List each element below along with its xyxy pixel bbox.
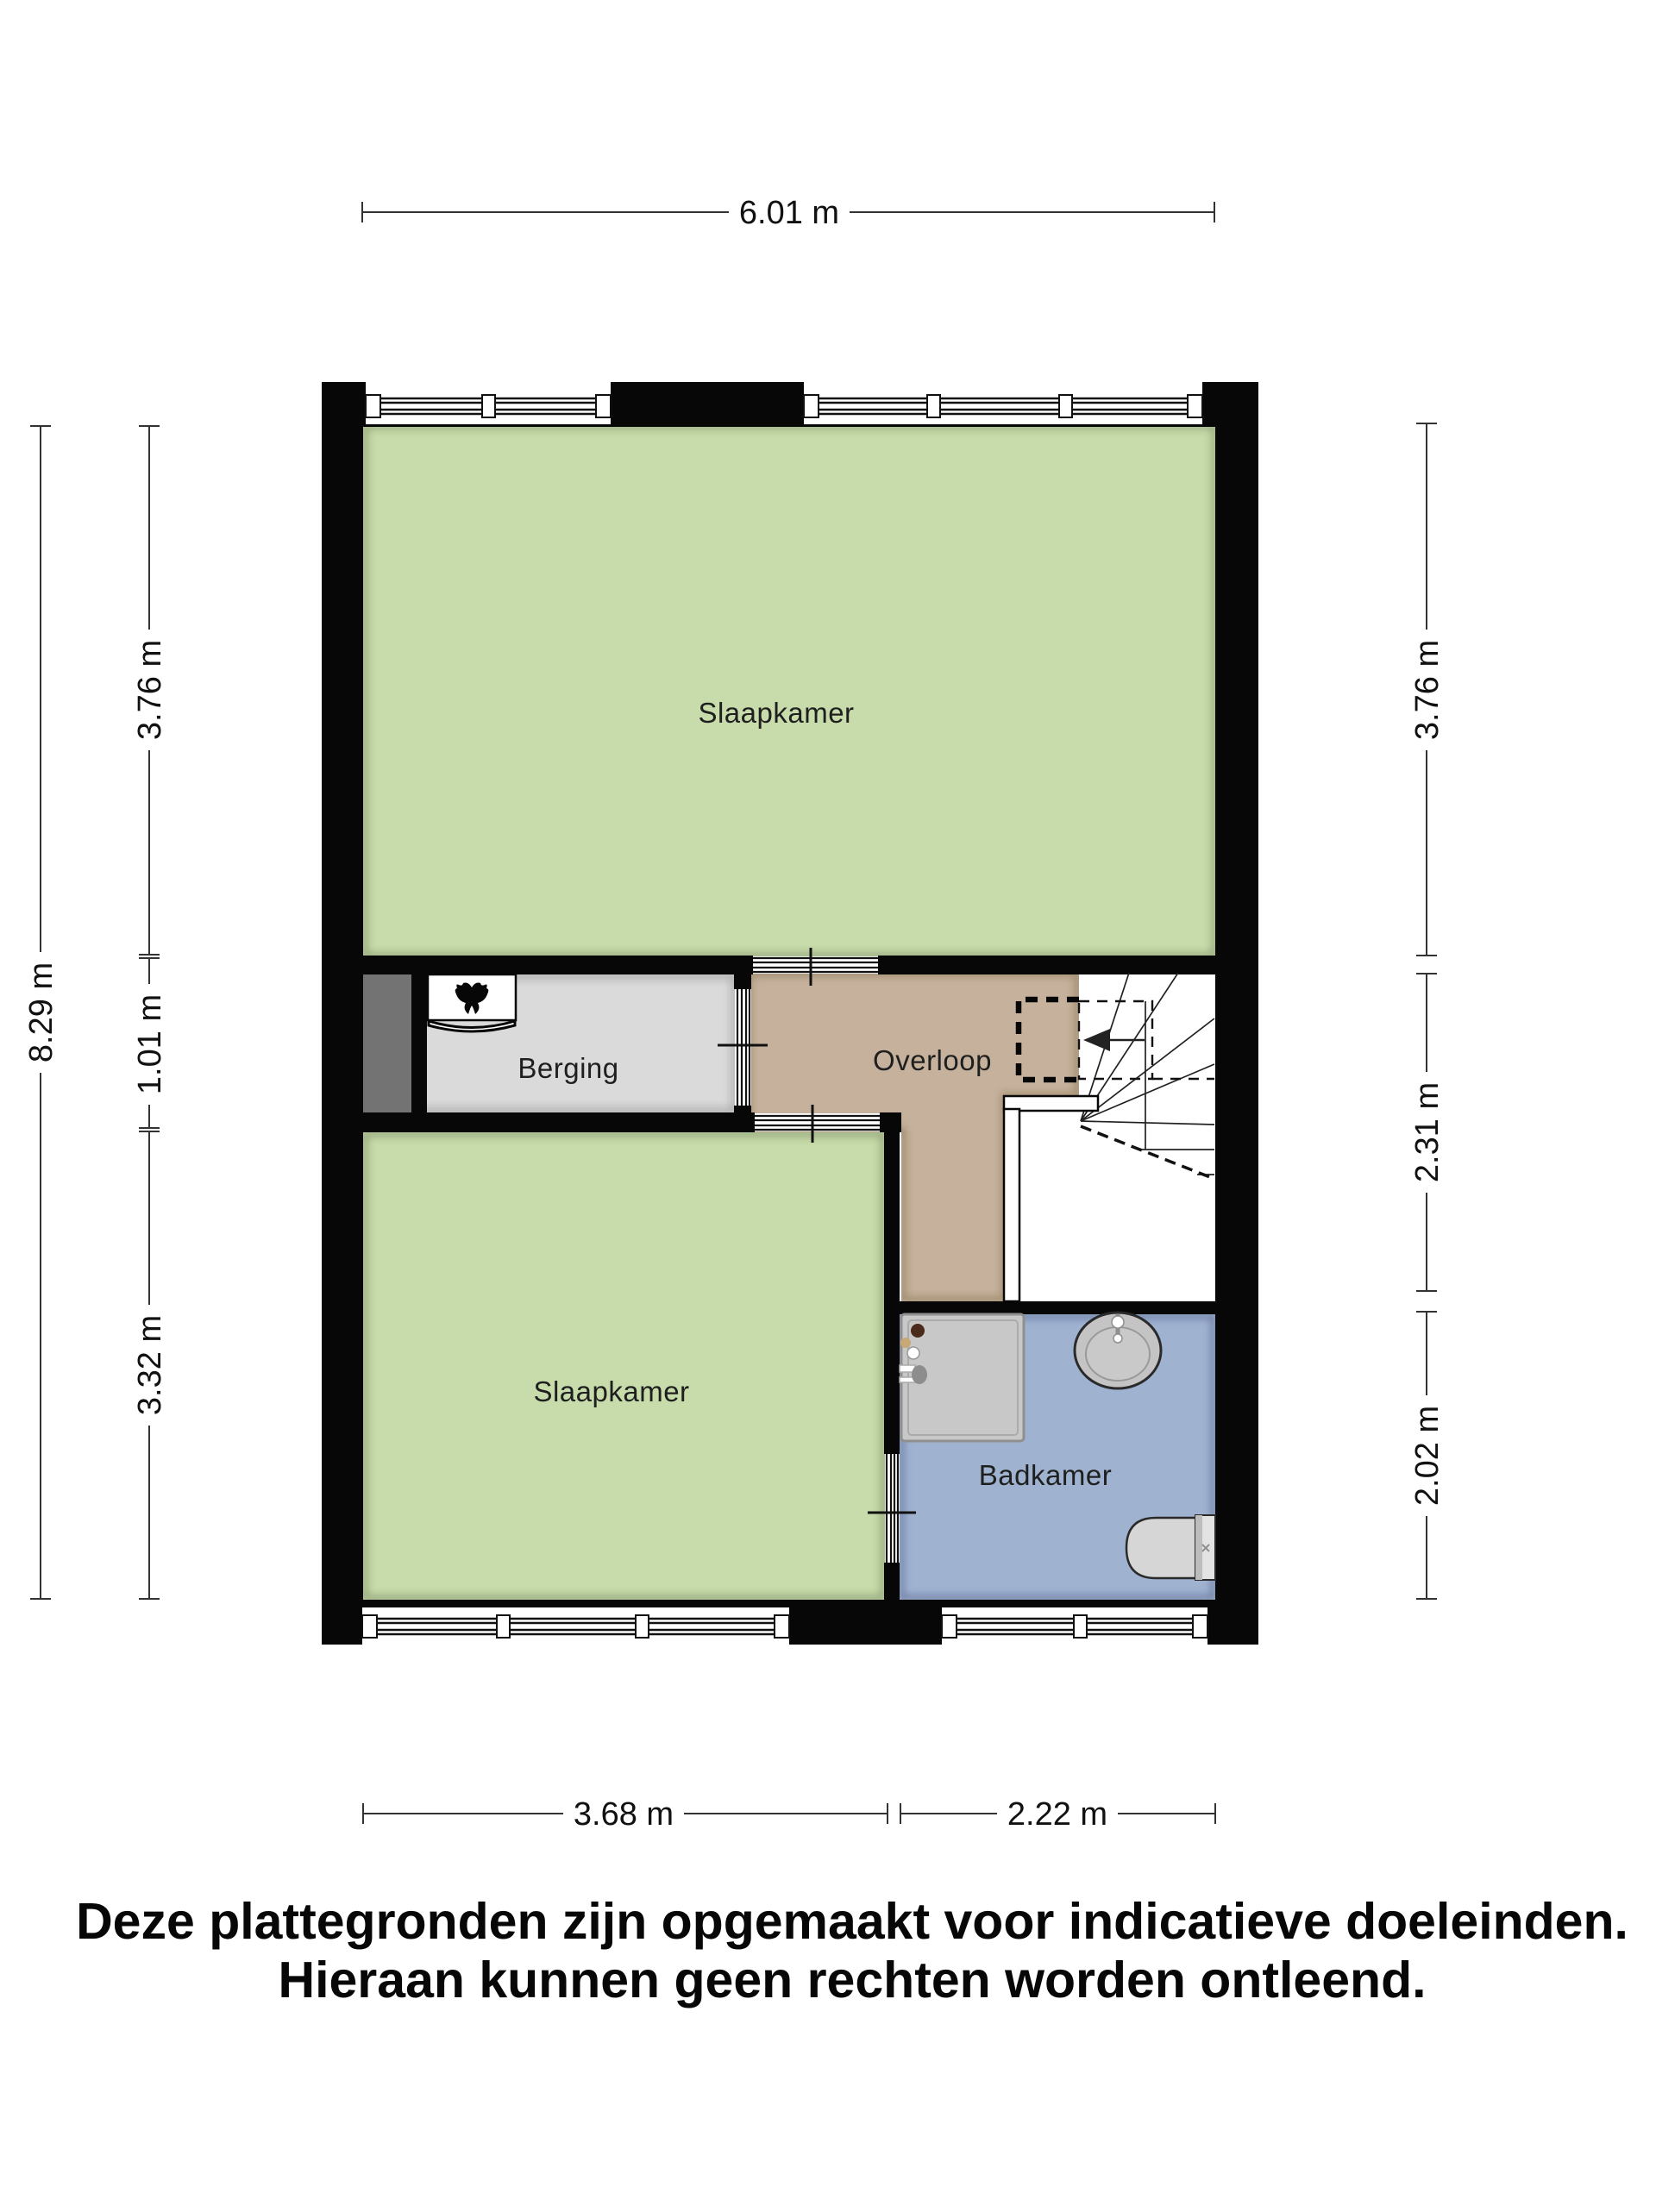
svg-text:8.29 m: 8.29 m xyxy=(23,962,60,1062)
svg-text:3.32 m: 3.32 m xyxy=(132,1315,168,1415)
svg-text:Slaapkamer: Slaapkamer xyxy=(698,697,854,729)
svg-text:Overloop: Overloop xyxy=(873,1044,992,1076)
svg-text:1.01 m: 1.01 m xyxy=(132,994,168,1094)
svg-text:3.68 m: 3.68 m xyxy=(574,1796,674,1833)
svg-text:2.31 m: 2.31 m xyxy=(1409,1082,1446,1182)
svg-text:3.76 m: 3.76 m xyxy=(1409,640,1446,740)
svg-text:Hieraan kunnen geen rechten wo: Hieraan kunnen geen rechten worden ontle… xyxy=(278,1952,1426,2008)
svg-text:Deze plattegronden zijn opgema: Deze plattegronden zijn opgemaakt voor i… xyxy=(76,1893,1628,1950)
svg-text:Berging: Berging xyxy=(517,1052,618,1084)
svg-text:3.76 m: 3.76 m xyxy=(132,640,168,740)
svg-text:2.22 m: 2.22 m xyxy=(1007,1796,1107,1833)
svg-text:2.02 m: 2.02 m xyxy=(1409,1406,1446,1506)
svg-text:Badkamer: Badkamer xyxy=(979,1459,1112,1491)
svg-text:6.01 m: 6.01 m xyxy=(739,195,839,231)
svg-text:Slaapkamer: Slaapkamer xyxy=(533,1375,689,1407)
